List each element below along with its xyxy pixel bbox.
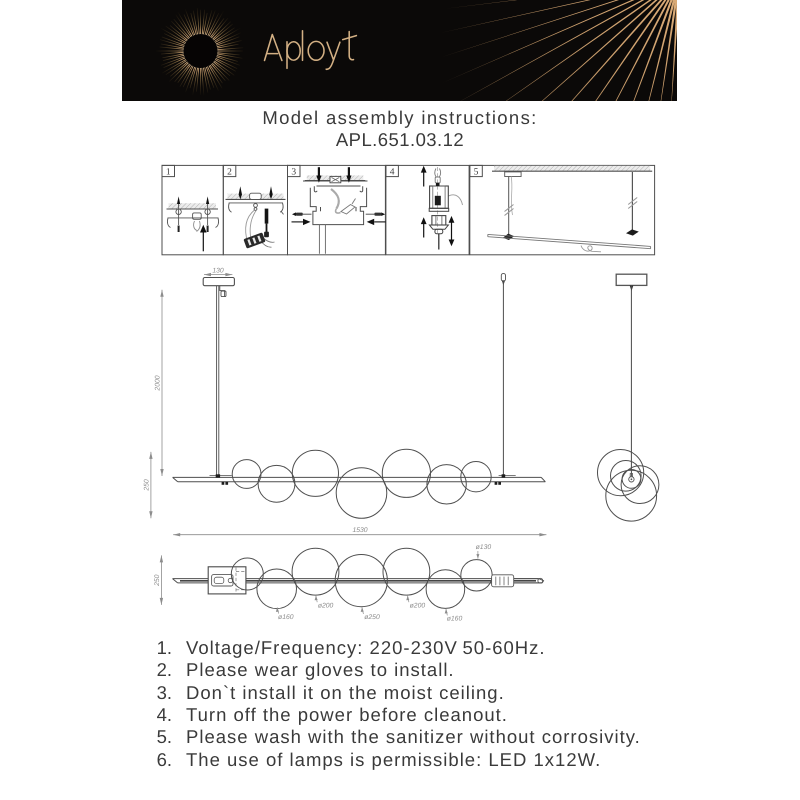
svg-text:130: 130: [212, 268, 224, 275]
svg-text:250: 250: [154, 574, 161, 587]
svg-text:ø200: ø200: [410, 603, 426, 610]
svg-text:5: 5: [474, 168, 479, 178]
svg-text:2000: 2000: [155, 375, 162, 391]
svg-text:ø130: ø130: [476, 544, 492, 551]
svg-text:ø200: ø200: [318, 603, 334, 610]
svg-text:4: 4: [390, 168, 395, 178]
svg-text:ø160: ø160: [278, 614, 294, 621]
svg-text:ø250: ø250: [364, 614, 380, 621]
svg-text:ø160: ø160: [447, 616, 463, 623]
svg-text:1530: 1530: [352, 527, 367, 534]
svg-text:250: 250: [143, 479, 150, 492]
svg-text:2: 2: [227, 168, 232, 178]
svg-text:3: 3: [291, 168, 296, 178]
svg-text:1: 1: [166, 168, 171, 178]
